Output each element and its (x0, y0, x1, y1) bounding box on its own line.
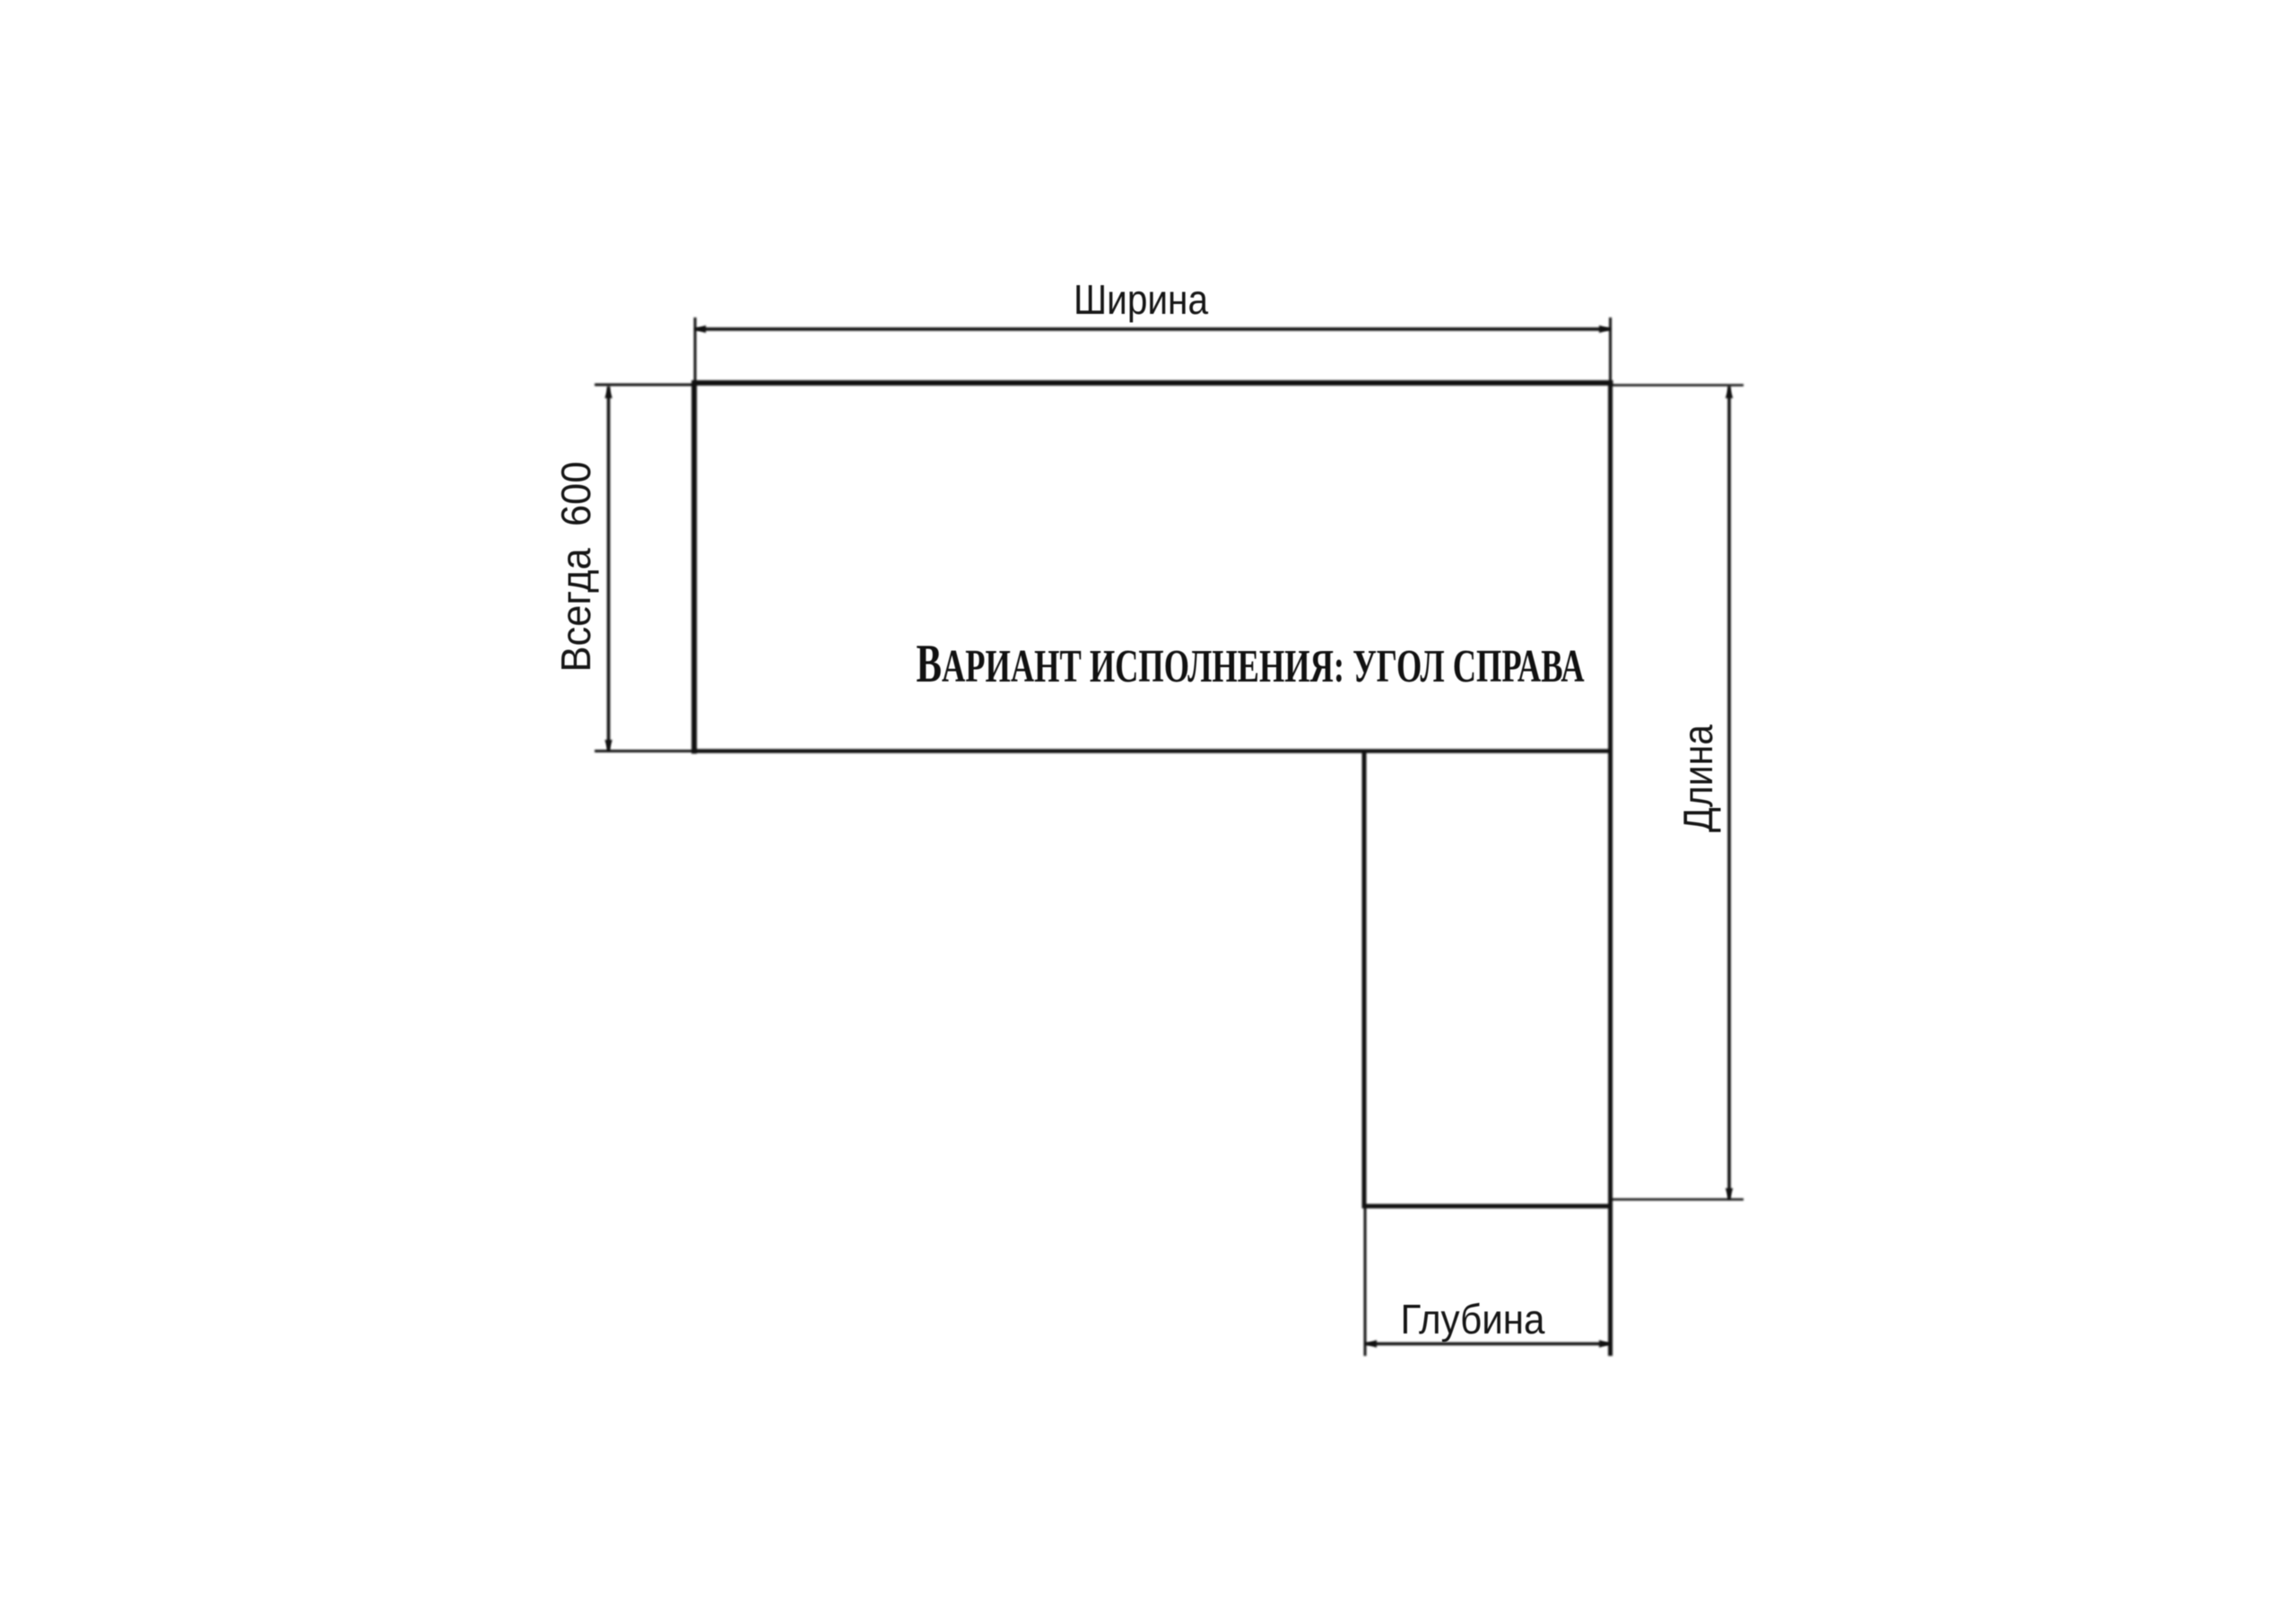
svg-text:Ширина: Ширина (1074, 276, 1208, 323)
svg-text:Длина: Длина (1674, 725, 1721, 832)
svg-text:ВАРИАНТ ИСПОЛНЕНИЯ: УГОЛ СПРАВ: ВАРИАНТ ИСПОЛНЕНИЯ: УГОЛ СПРАВА (917, 634, 1585, 694)
svg-text:Глубина: Глубина (1401, 1296, 1545, 1342)
svg-text:Всегда 600: Всегда 600 (552, 462, 599, 673)
